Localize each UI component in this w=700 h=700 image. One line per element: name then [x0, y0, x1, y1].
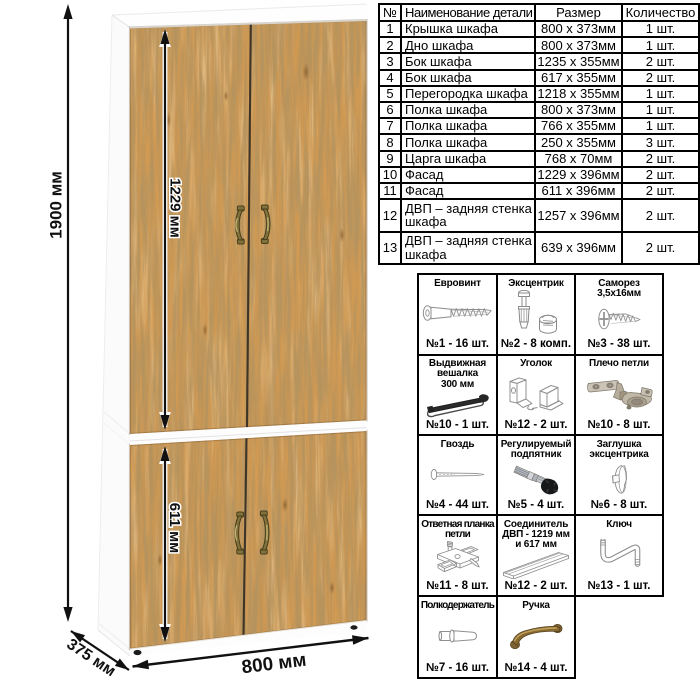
svg-text:1900 мм: 1900 мм	[47, 171, 66, 239]
svg-text:611 мм: 611 мм	[166, 503, 183, 554]
svg-text:800 мм: 800 мм	[240, 650, 307, 679]
svg-text:1229 мм: 1229 мм	[167, 178, 184, 238]
